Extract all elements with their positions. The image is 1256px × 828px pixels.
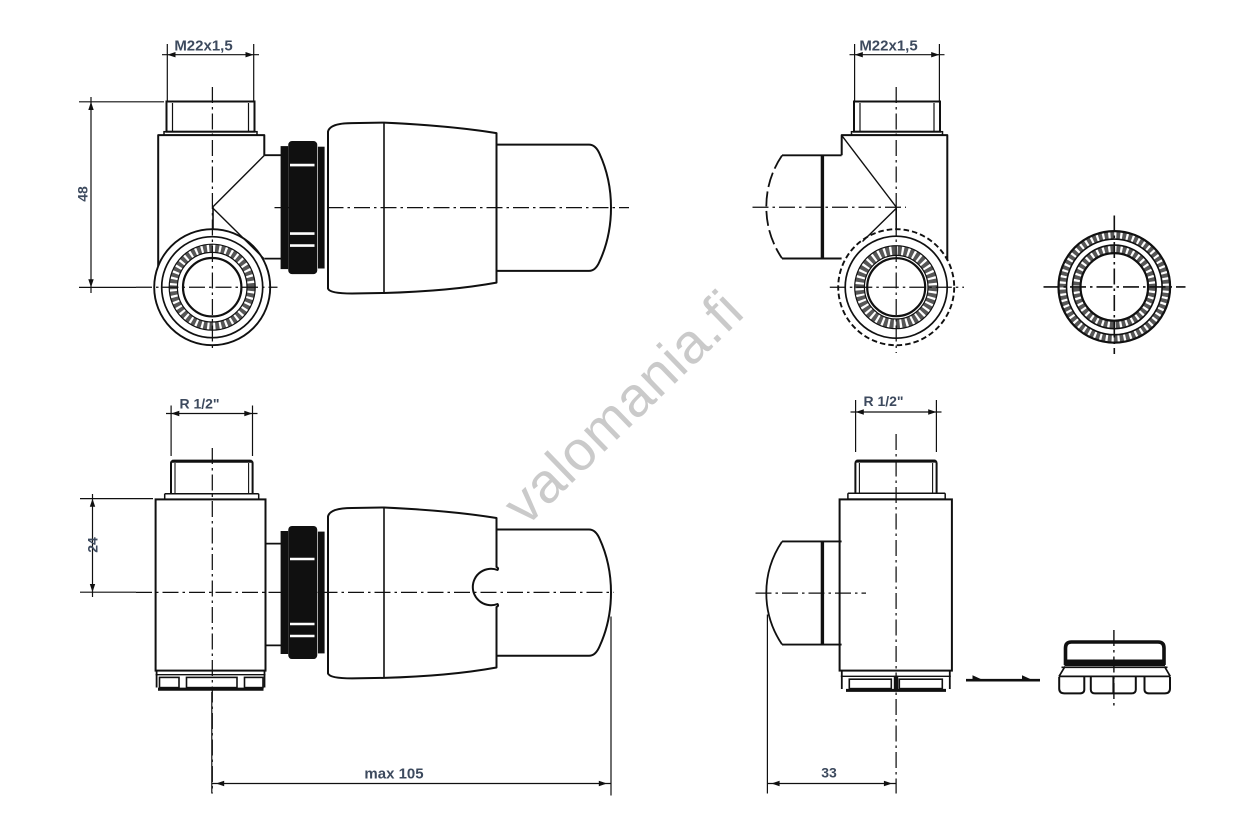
svg-text:48: 48 <box>75 186 91 202</box>
svg-text:M22x1,5: M22x1,5 <box>859 38 917 55</box>
svg-text:max 105: max 105 <box>364 766 423 783</box>
svg-text:33: 33 <box>821 765 837 781</box>
svg-text:R 1/2": R 1/2" <box>863 393 903 409</box>
svg-text:R 1/2": R 1/2" <box>179 396 219 412</box>
svg-text:24: 24 <box>85 537 101 553</box>
svg-text:M22x1,5: M22x1,5 <box>174 38 232 55</box>
